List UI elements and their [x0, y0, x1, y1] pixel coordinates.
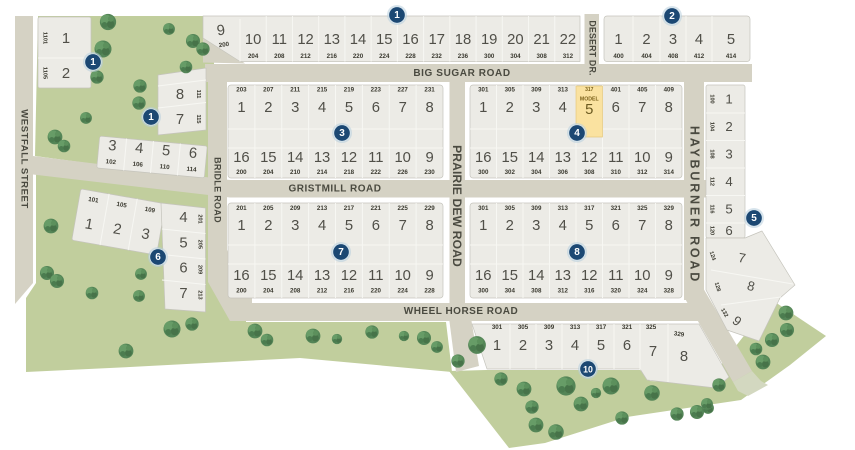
svg-text:WESTFALL STREET: WESTFALL STREET [19, 109, 30, 209]
svg-text:16: 16 [233, 268, 249, 284]
svg-text:313: 313 [558, 87, 569, 94]
svg-text:8: 8 [425, 100, 433, 116]
svg-text:3: 3 [545, 338, 553, 354]
svg-text:4: 4 [725, 174, 732, 189]
svg-text:4: 4 [559, 100, 567, 116]
svg-text:220: 220 [371, 288, 382, 295]
svg-text:229: 229 [424, 205, 435, 212]
svg-text:223: 223 [371, 87, 382, 94]
svg-text:5: 5 [345, 100, 353, 116]
svg-text:1: 1 [725, 92, 732, 107]
svg-text:1: 1 [614, 32, 622, 48]
svg-text:408: 408 [668, 53, 679, 60]
svg-text:306: 306 [558, 169, 569, 176]
svg-text:224: 224 [379, 53, 390, 60]
svg-text:6: 6 [612, 218, 620, 234]
svg-text:3: 3 [532, 100, 540, 116]
svg-text:9: 9 [665, 268, 673, 284]
svg-text:16: 16 [402, 32, 418, 48]
svg-text:2: 2 [519, 338, 527, 354]
svg-text:308: 308 [531, 288, 542, 295]
svg-text:309: 309 [531, 205, 542, 212]
svg-text:8: 8 [665, 100, 673, 116]
svg-text:321: 321 [611, 205, 622, 212]
svg-text:6: 6 [725, 223, 732, 238]
svg-text:14: 14 [287, 268, 303, 284]
svg-text:WHEEL HORSE ROAD: WHEEL HORSE ROAD [404, 306, 519, 317]
svg-text:312: 312 [637, 169, 648, 176]
svg-text:15: 15 [502, 268, 518, 284]
svg-text:400: 400 [613, 53, 624, 60]
svg-text:BIG SUGAR ROAD: BIG SUGAR ROAD [413, 68, 510, 79]
svg-text:305: 305 [505, 205, 516, 212]
svg-text:314: 314 [664, 169, 675, 176]
svg-text:304: 304 [531, 169, 542, 176]
svg-text:231: 231 [424, 87, 435, 94]
svg-text:13: 13 [555, 150, 571, 166]
svg-text:10: 10 [394, 268, 410, 284]
svg-text:4: 4 [571, 338, 579, 354]
svg-text:2: 2 [264, 100, 272, 116]
svg-text:301: 301 [478, 87, 489, 94]
svg-text:8: 8 [176, 87, 184, 103]
svg-text:204: 204 [263, 288, 274, 295]
svg-text:226: 226 [398, 169, 409, 176]
svg-text:2: 2 [506, 218, 514, 234]
svg-text:9: 9 [425, 150, 433, 166]
svg-text:218: 218 [344, 169, 355, 176]
svg-text:10: 10 [634, 150, 650, 166]
svg-text:102: 102 [105, 158, 116, 166]
svg-text:13: 13 [314, 150, 330, 166]
svg-text:111: 111 [195, 90, 201, 99]
svg-text:214: 214 [317, 169, 328, 176]
svg-text:305: 305 [518, 324, 529, 331]
svg-text:1105: 1105 [42, 67, 48, 79]
svg-text:4: 4 [695, 32, 703, 48]
svg-text:11: 11 [272, 32, 287, 48]
svg-text:302: 302 [505, 169, 516, 176]
svg-text:112: 112 [709, 177, 715, 186]
svg-text:300: 300 [478, 169, 489, 176]
svg-text:1: 1 [237, 218, 245, 234]
svg-text:4: 4 [134, 140, 144, 157]
svg-text:203: 203 [236, 87, 247, 94]
svg-text:1: 1 [493, 338, 501, 354]
svg-text:412: 412 [694, 53, 705, 60]
svg-text:5: 5 [725, 202, 732, 217]
svg-text:320: 320 [611, 288, 622, 295]
svg-text:232: 232 [432, 53, 443, 60]
svg-text:2: 2 [669, 11, 675, 22]
svg-text:12: 12 [341, 150, 357, 166]
svg-text:7: 7 [338, 247, 344, 258]
svg-text:16: 16 [475, 150, 491, 166]
svg-text:1: 1 [394, 10, 400, 21]
svg-text:225: 225 [398, 205, 409, 212]
svg-text:228: 228 [405, 53, 416, 60]
svg-text:404: 404 [641, 53, 652, 60]
svg-text:110: 110 [159, 163, 170, 171]
svg-text:7: 7 [399, 218, 407, 234]
svg-text:328: 328 [664, 288, 675, 295]
svg-text:11: 11 [608, 268, 623, 284]
svg-text:15: 15 [260, 150, 276, 166]
svg-text:401: 401 [611, 87, 622, 94]
svg-text:11: 11 [368, 268, 383, 284]
svg-text:209: 209 [197, 265, 203, 274]
svg-text:3: 3 [339, 128, 345, 139]
svg-text:2: 2 [264, 218, 272, 234]
svg-text:7: 7 [649, 344, 657, 360]
svg-text:205: 205 [197, 240, 203, 249]
svg-text:1: 1 [90, 57, 96, 68]
svg-text:207: 207 [263, 87, 274, 94]
svg-text:304: 304 [510, 53, 521, 60]
svg-text:10: 10 [583, 364, 593, 374]
svg-text:12: 12 [581, 268, 597, 284]
svg-text:6: 6 [179, 261, 187, 277]
svg-text:301: 301 [478, 205, 489, 212]
svg-text:12: 12 [341, 268, 357, 284]
svg-text:PRAIRIE DEW ROAD: PRAIRIE DEW ROAD [450, 145, 464, 267]
svg-text:317: 317 [585, 87, 594, 93]
svg-text:9: 9 [425, 268, 433, 284]
svg-text:228: 228 [424, 288, 435, 295]
svg-text:13: 13 [555, 268, 571, 284]
svg-text:204: 204 [248, 53, 259, 60]
svg-text:5: 5 [179, 235, 187, 251]
svg-text:10: 10 [245, 32, 261, 48]
svg-text:15: 15 [502, 150, 518, 166]
svg-text:6: 6 [188, 145, 198, 162]
svg-text:7: 7 [638, 218, 646, 234]
svg-text:6: 6 [372, 218, 380, 234]
svg-text:220: 220 [353, 53, 364, 60]
svg-text:200: 200 [236, 288, 247, 295]
svg-text:12: 12 [297, 32, 313, 48]
svg-text:3: 3 [107, 138, 117, 155]
svg-text:1: 1 [237, 100, 245, 116]
svg-text:10: 10 [394, 150, 410, 166]
svg-text:329: 329 [673, 330, 685, 338]
svg-text:300: 300 [478, 288, 489, 295]
svg-text:1101: 1101 [42, 32, 48, 44]
svg-text:8: 8 [574, 247, 580, 258]
svg-text:309: 309 [531, 87, 542, 94]
svg-text:1: 1 [62, 31, 70, 47]
svg-text:3: 3 [532, 218, 540, 234]
svg-text:208: 208 [290, 288, 301, 295]
svg-text:212: 212 [300, 53, 311, 60]
svg-text:115: 115 [195, 114, 201, 123]
svg-text:1: 1 [148, 112, 154, 123]
svg-text:324: 324 [637, 288, 648, 295]
svg-text:201: 201 [197, 214, 203, 223]
svg-text:219: 219 [344, 87, 355, 94]
svg-text:2: 2 [642, 32, 650, 48]
svg-text:8: 8 [680, 349, 688, 365]
svg-text:210: 210 [290, 169, 301, 176]
svg-text:11: 11 [608, 150, 623, 166]
svg-text:6: 6 [372, 100, 380, 116]
svg-text:108: 108 [709, 149, 715, 158]
svg-text:313: 313 [558, 205, 569, 212]
svg-text:106: 106 [132, 161, 143, 169]
svg-text:5: 5 [161, 143, 171, 160]
svg-text:100: 100 [709, 94, 715, 103]
svg-text:212: 212 [317, 288, 328, 295]
svg-text:14: 14 [528, 268, 544, 284]
svg-text:209: 209 [290, 205, 301, 212]
svg-text:GRISTMILL ROAD: GRISTMILL ROAD [289, 184, 382, 195]
svg-text:5: 5 [727, 32, 735, 48]
svg-text:2: 2 [62, 66, 70, 82]
svg-text:227: 227 [398, 87, 409, 94]
svg-text:116: 116 [709, 204, 715, 213]
svg-text:216: 216 [344, 288, 355, 295]
svg-text:308: 308 [536, 53, 547, 60]
svg-text:213: 213 [197, 290, 203, 299]
svg-text:15: 15 [260, 268, 276, 284]
svg-text:313: 313 [570, 324, 581, 331]
svg-text:8: 8 [665, 218, 673, 234]
svg-text:104: 104 [709, 122, 715, 132]
svg-text:21: 21 [533, 32, 549, 48]
svg-text:5: 5 [345, 218, 353, 234]
svg-text:1: 1 [479, 100, 487, 116]
svg-text:312: 312 [563, 53, 574, 60]
svg-text:4: 4 [559, 218, 567, 234]
svg-text:6: 6 [155, 252, 161, 263]
svg-text:317: 317 [584, 205, 595, 212]
svg-text:8: 8 [425, 218, 433, 234]
svg-text:2: 2 [725, 119, 732, 134]
svg-text:222: 222 [371, 169, 382, 176]
svg-text:325: 325 [646, 324, 657, 331]
svg-text:216: 216 [327, 53, 338, 60]
svg-text:200: 200 [218, 41, 230, 49]
svg-text:BRIDLE ROAD: BRIDLE ROAD [213, 157, 223, 223]
svg-text:208: 208 [274, 53, 285, 60]
svg-text:11: 11 [368, 150, 383, 166]
svg-text:414: 414 [726, 53, 737, 60]
svg-text:221: 221 [371, 205, 382, 212]
svg-text:204: 204 [263, 169, 274, 176]
svg-text:325: 325 [637, 205, 648, 212]
svg-text:10: 10 [634, 268, 650, 284]
svg-text:317: 317 [596, 324, 607, 331]
svg-text:17: 17 [428, 32, 444, 48]
svg-text:HAYBURNER ROAD: HAYBURNER ROAD [688, 126, 702, 284]
svg-text:12: 12 [581, 150, 597, 166]
svg-text:114: 114 [186, 166, 197, 174]
svg-text:6: 6 [623, 338, 631, 354]
svg-text:5: 5 [597, 338, 605, 354]
svg-text:304: 304 [505, 288, 516, 295]
svg-text:308: 308 [584, 169, 595, 176]
svg-text:9: 9 [665, 150, 673, 166]
svg-text:300: 300 [484, 53, 495, 60]
svg-text:6: 6 [612, 100, 620, 116]
svg-text:4: 4 [318, 100, 326, 116]
svg-text:405: 405 [637, 87, 648, 94]
svg-text:312: 312 [558, 288, 569, 295]
svg-text:201: 201 [236, 205, 247, 212]
svg-text:3: 3 [291, 218, 299, 234]
svg-text:15: 15 [376, 32, 392, 48]
svg-text:14: 14 [350, 32, 366, 48]
svg-text:3: 3 [291, 100, 299, 116]
svg-text:3: 3 [669, 32, 677, 48]
svg-text:200: 200 [236, 169, 247, 176]
svg-text:13: 13 [314, 268, 330, 284]
svg-text:211: 211 [290, 87, 301, 94]
svg-text:4: 4 [574, 128, 580, 139]
svg-text:7: 7 [176, 112, 184, 128]
svg-text:5: 5 [585, 102, 593, 118]
svg-text:16: 16 [233, 150, 249, 166]
svg-text:215: 215 [317, 87, 328, 94]
svg-text:7: 7 [399, 100, 407, 116]
svg-text:20: 20 [507, 32, 523, 48]
svg-text:309: 309 [544, 324, 555, 331]
svg-text:DESERT DR.: DESERT DR. [588, 20, 598, 75]
svg-text:7: 7 [179, 286, 187, 302]
svg-text:14: 14 [528, 150, 544, 166]
svg-text:13: 13 [324, 32, 340, 48]
svg-text:236: 236 [458, 53, 469, 60]
svg-text:19: 19 [481, 32, 497, 48]
svg-text:321: 321 [622, 324, 633, 331]
svg-text:4: 4 [179, 210, 187, 226]
svg-text:4: 4 [318, 218, 326, 234]
svg-text:224: 224 [398, 288, 409, 295]
svg-text:14: 14 [287, 150, 303, 166]
svg-text:5: 5 [751, 213, 757, 224]
svg-text:301: 301 [492, 324, 503, 331]
svg-text:329: 329 [664, 205, 675, 212]
svg-text:2: 2 [506, 100, 514, 116]
svg-text:305: 305 [505, 87, 516, 94]
svg-text:310: 310 [611, 169, 622, 176]
svg-text:205: 205 [263, 205, 274, 212]
svg-text:18: 18 [455, 32, 471, 48]
svg-text:1: 1 [479, 218, 487, 234]
svg-text:316: 316 [584, 288, 595, 295]
svg-text:230: 230 [424, 169, 435, 176]
svg-text:22: 22 [560, 32, 576, 48]
svg-text:16: 16 [475, 268, 491, 284]
svg-text:5: 5 [585, 218, 593, 234]
svg-text:213: 213 [317, 205, 328, 212]
svg-text:409: 409 [664, 87, 675, 94]
svg-text:3: 3 [725, 147, 732, 162]
svg-text:217: 217 [344, 205, 355, 212]
svg-text:120: 120 [709, 226, 715, 235]
svg-text:7: 7 [638, 100, 646, 116]
